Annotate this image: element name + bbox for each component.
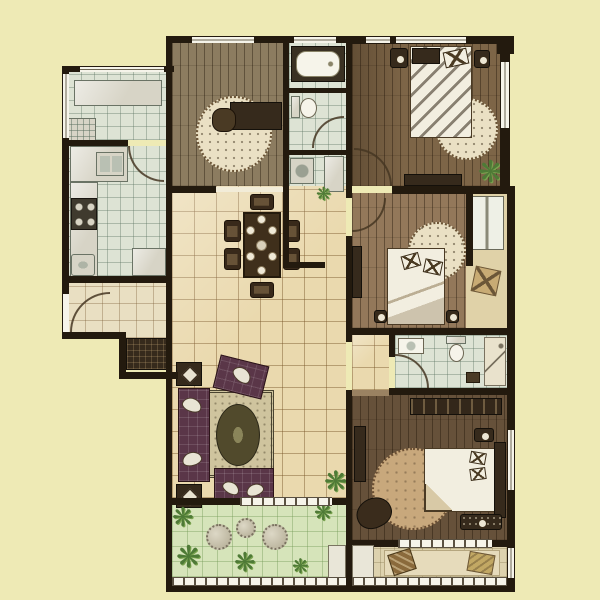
- wall-kitchen-bottom: [62, 276, 172, 283]
- laundry-washer: [290, 158, 314, 184]
- floor-plan: ❋ ❋: [0, 0, 600, 600]
- master-bench: [460, 514, 502, 530]
- wall-h186-right: [392, 186, 514, 194]
- end-table-top: [176, 362, 202, 386]
- wall-study-hall-stub: [166, 186, 216, 193]
- kitchen-counter-corner: [132, 248, 166, 276]
- wall-bath-bottom: [283, 262, 325, 268]
- bedroom-tr-dresser: [404, 174, 462, 186]
- washbasin-2: [398, 338, 424, 354]
- plate: [257, 266, 266, 275]
- bedroom-mr-dresser: [352, 246, 362, 298]
- dining-chair-top: [250, 194, 274, 210]
- balcony-top-window: [80, 67, 164, 72]
- plate: [246, 252, 255, 261]
- study-threshold: [216, 187, 283, 192]
- master-nightstand-top: [474, 428, 494, 442]
- wall-bath2-left: [389, 335, 395, 357]
- dining-chair-bottom: [250, 282, 274, 298]
- hall-garden-slider: [240, 497, 332, 506]
- bedroom-tr-pillow-dark: [412, 48, 440, 64]
- living-oval-rug: [216, 404, 260, 466]
- bedroom-tr-nightstand-right: [474, 50, 490, 68]
- study-window: [192, 37, 254, 43]
- kitchen-sink: [96, 152, 124, 176]
- wall-bedroom-tr-left: [346, 42, 352, 193]
- plate: [268, 226, 277, 235]
- entry-door-gap: [63, 294, 69, 332]
- bathtub-basin: [296, 51, 340, 77]
- entry-mat: [126, 338, 170, 370]
- shaft-basket: [471, 266, 502, 297]
- plate: [268, 252, 277, 261]
- shower-2: [484, 337, 506, 386]
- stepping-stone-2: [236, 518, 256, 538]
- garden-railing: [172, 577, 346, 586]
- stepping-stone-1: [206, 524, 232, 550]
- bedroom-mr-stool-right: [446, 310, 459, 323]
- balcony-left-window: [63, 74, 69, 138]
- study-chair: [212, 108, 236, 132]
- wall-mr-shaft: [466, 193, 473, 266]
- balcony-shelf: [74, 80, 162, 106]
- master-dresser: [354, 426, 366, 482]
- wall-bath2-bottom: [389, 388, 515, 395]
- wall-h328: [346, 328, 515, 335]
- bedroom-tr-nightstand-left: [390, 48, 408, 68]
- wall-wc-divider: [283, 150, 352, 155]
- toilet-main-bowl: [300, 98, 317, 118]
- kitchen-basin: [71, 254, 95, 276]
- wall-mr-left-top: [346, 186, 352, 198]
- master-balcony-slider: [398, 539, 492, 548]
- master-pillow-2: [469, 467, 487, 481]
- wall-balcony-kitchen: [62, 140, 128, 146]
- master-pillow-1: [469, 451, 487, 466]
- master-bed-fold: [425, 484, 452, 511]
- wall-center-left-full: [166, 36, 172, 592]
- toilet-2-bowl: [449, 344, 464, 362]
- plant-icon: ❋: [324, 468, 347, 496]
- shaft-window-pane: [470, 196, 504, 250]
- pier-top-right: [497, 36, 514, 54]
- bedroom-mr-stool-left: [374, 310, 387, 323]
- plant-icon: ❋: [314, 503, 332, 525]
- master-balcony-railing: [352, 577, 507, 586]
- wall-garden-bottom: [166, 585, 352, 592]
- bedroom-tr-window-1: [366, 37, 390, 43]
- wall-right-mid: [507, 186, 515, 392]
- plant-icon: ❋: [234, 550, 256, 576]
- plant-icon: ❋: [316, 186, 331, 204]
- corridor-floor: [352, 335, 389, 390]
- bath-2-drain: [466, 372, 480, 383]
- wall-tub-divider: [283, 88, 352, 93]
- plate: [257, 215, 266, 224]
- dining-centerpiece: [256, 240, 267, 251]
- bedroom-tr-window-2: [396, 37, 466, 43]
- plant-icon: ❋: [292, 556, 309, 576]
- bath-window: [294, 37, 336, 43]
- master-balcony-cushion-2: [466, 551, 495, 575]
- wall-mr-left-bottom: [346, 236, 352, 342]
- dining-chair-l2: [224, 248, 241, 270]
- stepping-stone-3: [262, 524, 288, 550]
- wall-entry-step-h: [62, 332, 126, 339]
- plant-icon: ❋: [172, 505, 194, 531]
- toilet-main-tank: [291, 96, 300, 118]
- plate: [246, 226, 255, 235]
- toilet-2-tank: [446, 336, 466, 344]
- plant-icon: ❋: [176, 543, 201, 573]
- bedroom-tr-right-window: [501, 62, 509, 128]
- master-wardrobe: [410, 398, 502, 415]
- master-headboard: [494, 442, 506, 518]
- master-balcony-right-window: [508, 548, 514, 578]
- dining-chair-l1: [224, 220, 241, 242]
- master-door-threshold: [352, 390, 389, 396]
- stove: [71, 198, 97, 230]
- master-right-window: [508, 430, 514, 490]
- study-desk: [230, 102, 282, 130]
